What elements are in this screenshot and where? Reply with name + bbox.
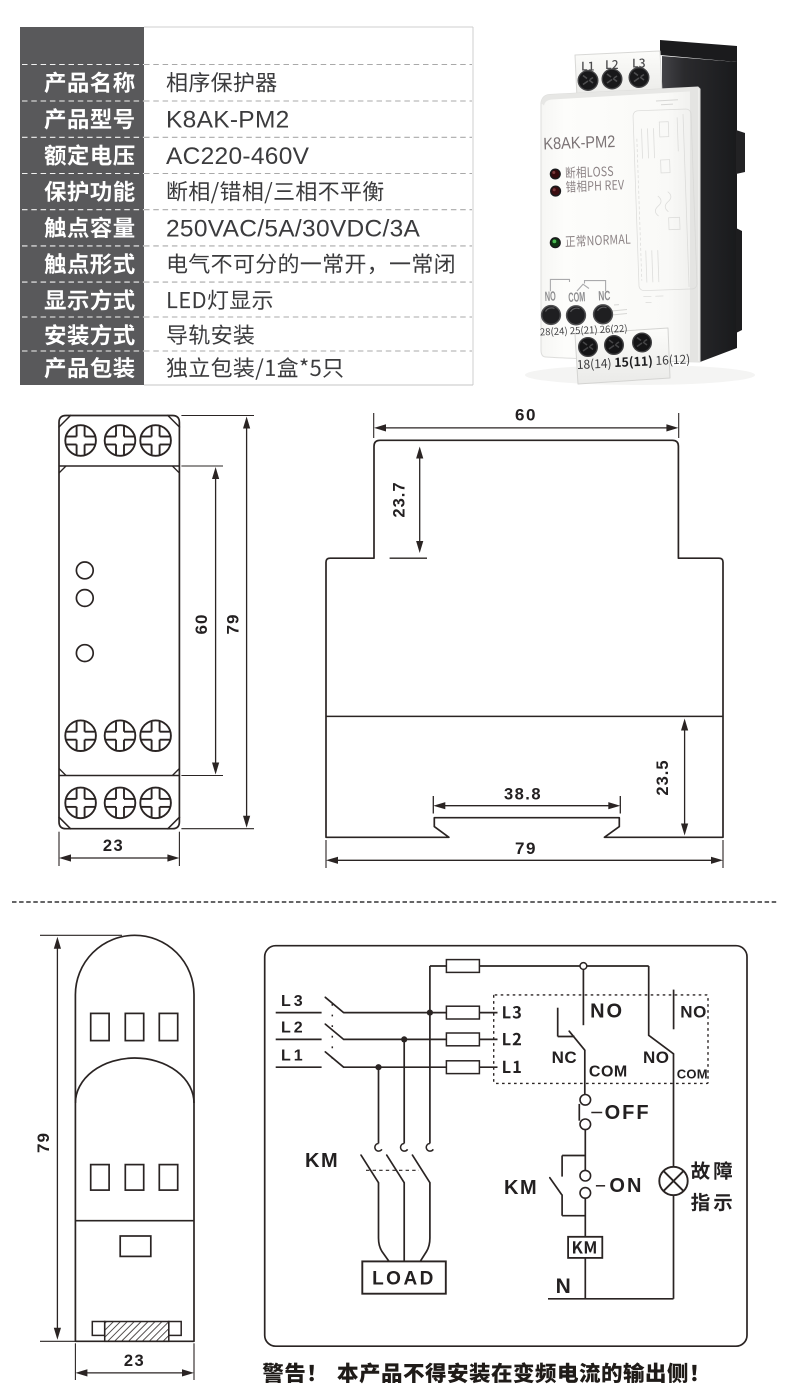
svg-text:NC: NC <box>552 1048 578 1067</box>
svg-text:23: 23 <box>103 837 124 855</box>
svg-text:79: 79 <box>515 839 537 858</box>
svg-text:23.5: 23.5 <box>654 759 672 795</box>
svg-text:23.7: 23.7 <box>391 481 409 517</box>
svg-text:NO: NO <box>643 1048 670 1067</box>
svg-text:250VAC/5A/30VDC/3A: 250VAC/5A/30VDC/3A <box>166 215 421 242</box>
svg-text:38.8: 38.8 <box>504 786 542 804</box>
svg-text:K8AK-PM2: K8AK-PM2 <box>166 107 290 134</box>
svg-text:23: 23 <box>124 1352 145 1370</box>
svg-text:L2: L2 <box>281 1020 306 1037</box>
svg-text:L3: L3 <box>281 993 306 1010</box>
svg-text:OFF: OFF <box>605 1102 651 1124</box>
svg-text:NO: NO <box>544 289 556 304</box>
svg-text:KM: KM <box>305 1150 339 1172</box>
svg-text:NO: NO <box>590 1001 624 1023</box>
svg-text:79: 79 <box>224 614 243 635</box>
svg-text:N: N <box>556 1275 572 1298</box>
svg-text:60: 60 <box>192 614 211 635</box>
svg-text:AC220-460V: AC220-460V <box>166 143 310 170</box>
svg-text:NC: NC <box>598 288 611 304</box>
svg-text:79: 79 <box>34 1132 53 1153</box>
svg-text:K8AK-PM2: K8AK-PM2 <box>543 132 616 154</box>
svg-text:COM: COM <box>568 289 586 305</box>
svg-text:ON: ON <box>609 1175 643 1197</box>
svg-text:COM: COM <box>589 1064 628 1081</box>
svg-text:L1: L1 <box>281 1047 306 1064</box>
svg-text:KM: KM <box>504 1177 538 1199</box>
svg-text:LOAD: LOAD <box>372 1269 436 1290</box>
svg-text:NO: NO <box>680 1003 707 1022</box>
svg-text:60: 60 <box>515 406 537 425</box>
svg-text:COM: COM <box>677 1067 708 1082</box>
